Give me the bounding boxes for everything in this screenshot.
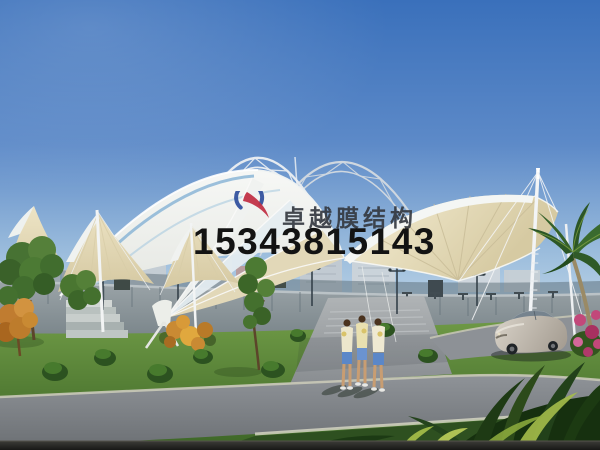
photo-bottom-bar — [0, 441, 600, 450]
phone-number: 15343815143 — [193, 221, 436, 263]
rendered-photo: 卓越膜结构 15343815143 — [0, 0, 600, 450]
